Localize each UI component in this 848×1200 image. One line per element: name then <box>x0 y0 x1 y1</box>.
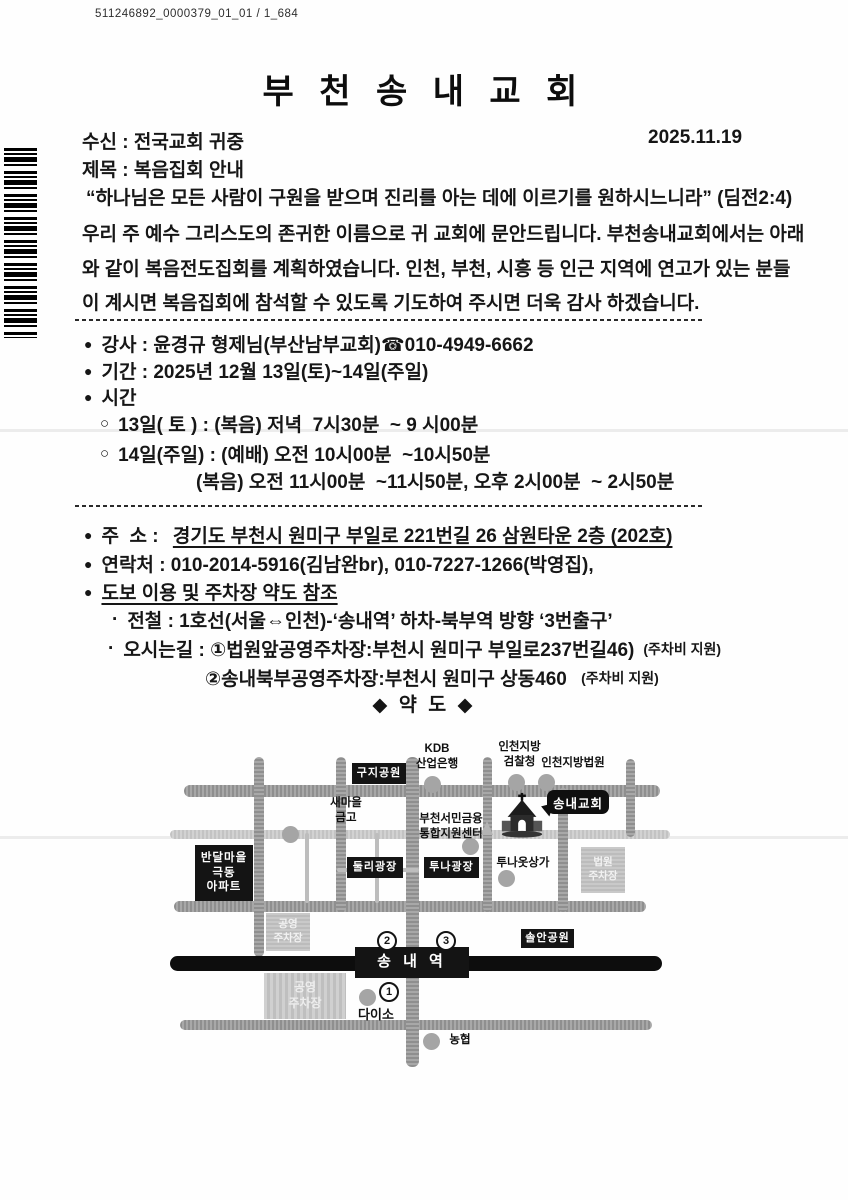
directions-line-2: ②송내북부공영주차장:부천시 원미구 상동460 (주차비 지원) <box>205 664 659 691</box>
bullet-icon: ● <box>84 363 92 379</box>
time-sun-line: ○ 14일(주일) : (예배) 오전 10시00분 ~10시50분 <box>100 440 490 467</box>
exit-3-badge: 3 <box>436 931 456 951</box>
daiso-label: 다이소 <box>351 1007 401 1024</box>
direction-arrow-icon <box>481 821 493 835</box>
direction-2-note: (주차비 지원) <box>581 668 659 688</box>
tuna-mall-marker <box>498 870 515 887</box>
bullet-icon: ● <box>84 556 92 572</box>
time-label-line: ● 시간 <box>84 383 136 410</box>
sub-bullet-icon: ○ <box>100 415 109 432</box>
period-line: ● 기간 : 2025년 12월 13일(토)~14일(주일) <box>84 357 428 384</box>
public-parking-north-box: 공영 주차장 <box>266 913 310 951</box>
subway-text: 전철 : 1호선(서울⇔인천)-‘송내역’ 하차-북부역 방향 ‘3번출구’ <box>127 606 612 633</box>
scan-header-code: 511246892_0000379_01_01 / 1_684 <box>95 8 298 20</box>
subway-line: · 전철 : 1호선(서울⇔인천)-‘송내역’ 하차-북부역 방향 ‘3번출구’ <box>112 606 613 633</box>
walk-note-line: ● 도보 이용 및 주차장 약도 참조 <box>84 578 338 605</box>
road-vertical-center <box>406 757 419 1067</box>
direction-1-text: 오시는길 : ①법원앞공영주차장:부천시 원미구 부일로237번길46) <box>123 635 634 662</box>
map-heading: ◆ 약 도 ◆ <box>0 688 848 717</box>
time-sat-text: 13일( 토 ) : (복음) 저녁 7시30분 ~ 9 시00분 <box>118 410 478 437</box>
songnae-station-box: 송 내 역 <box>355 947 469 978</box>
dot-bullet-icon: · <box>108 638 114 660</box>
dooly-plaza-box: 둘리광장 <box>347 857 403 878</box>
speaker-text: 강사 : 윤경규 형제님(부산남부교회)☎010-4949-6662 <box>101 330 533 357</box>
time-sun-text: 14일(주일) : (예배) 오전 10시00분 ~10시50분 <box>118 440 490 467</box>
tuna-plaza-box: 투나광장 <box>424 857 479 878</box>
dot-bullet-icon: · <box>112 609 118 631</box>
contact-text: 연락처 : 010-2014-5916(김남완br), 010-7227-126… <box>101 550 593 577</box>
guji-park-box: 구지공원 <box>352 763 406 784</box>
exit-1-badge: 1 <box>379 982 399 1002</box>
saemaul-marker <box>282 826 299 843</box>
location-map: 송 내 역 구지공원 반달마을 극동 아파트 둘리광장 투나광장 솔안공원 법원… <box>170 733 670 1078</box>
kdb-bank-label: KDB 산업은행 <box>407 742 467 772</box>
road-vertical-6 <box>626 759 635 837</box>
block-line-vertical-2 <box>305 833 309 903</box>
court-parking-box: 법원 주차장 <box>581 847 625 893</box>
scanned-notice-page: 511246892_0000379_01_01 / 1_684 부 천 송 내 … <box>0 0 848 1200</box>
solan-park-box: 솔안공원 <box>521 929 574 948</box>
time-sun-cont-line: (복음) 오전 11시00분 ~11시50분, 오후 2시00분 ~ 2시50분 <box>196 467 674 494</box>
time-sat-line: ○ 13일( 토 ) : (복음) 저녁 7시30분 ~ 9 시00분 <box>100 410 478 437</box>
direction-2-text: ②송내북부공영주차장:부천시 원미구 상동460 <box>205 664 572 691</box>
bullet-icon: ● <box>84 584 92 600</box>
page-title: 부 천 송 내 교 회 <box>0 64 848 113</box>
recipient-line: 수신 : 전국교회 귀중 <box>82 127 244 154</box>
contact-line: ● 연락처 : 010-2014-5916(김남완br), 010-7227-1… <box>84 550 594 577</box>
district-court-marker <box>538 774 555 791</box>
public-parking-south-box: 공영 주차장 <box>264 973 346 1019</box>
bullet-icon: ● <box>84 389 92 405</box>
nonghyup-label: 농협 <box>444 1033 476 1048</box>
finance-center-label: 부천서민금융 통합지원센터 <box>415 812 487 842</box>
district-court-label: 인천지방법원 <box>533 756 613 771</box>
bullet-icon: ● <box>84 527 92 543</box>
period-text: 기간 : 2025년 12월 13일(토)~14일(주일) <box>101 357 428 384</box>
dashed-divider-2 <box>75 505 703 507</box>
road-vertical-1 <box>254 757 264 957</box>
speaker-line: ● 강사 : 윤경규 형제님(부산남부교회)☎010-4949-6662 <box>84 330 534 357</box>
nonghyup-marker <box>423 1033 440 1050</box>
time-label-text: 시간 <box>101 383 136 410</box>
date: 2025.11.19 <box>648 127 742 149</box>
sub-bullet-icon: ○ <box>100 445 109 462</box>
tuna-mall-label: 투나옷상가 <box>493 856 553 871</box>
kdb-bank-marker <box>424 776 441 793</box>
direction-1-note: (주차비 지원) <box>643 639 721 659</box>
prosecutor-marker <box>508 774 525 791</box>
barcode <box>4 148 37 338</box>
bullet-icon: ● <box>84 336 92 352</box>
address-line: ● 주 소 : 경기도 부천시 원미구 부일로 221번길 26 삼원타운 2층… <box>84 521 672 548</box>
intro-line-1: “하나님은 모든 사람이 구원을 받으며 진리를 아는 데에 이르기를 원하시느… <box>86 183 792 210</box>
directions-line-1: · 오시는길 : ①법원앞공영주차장:부천시 원미구 부일로237번길46) (… <box>108 635 721 662</box>
intro-line-3: 와 같이 복음전도집회를 계획하였습니다. 인천, 부천, 시흥 등 인근 지역… <box>82 254 790 281</box>
bandal-apartment-box: 반달마을 극동 아파트 <box>195 845 253 901</box>
walk-note-text: 도보 이용 및 주차장 약도 참조 <box>101 578 337 605</box>
saemaul-label: 새마을 금고 <box>320 796 372 826</box>
road-vertical-2 <box>336 757 346 912</box>
songnae-church-callout: 송내교회 <box>547 790 609 814</box>
daiso-marker <box>359 989 376 1006</box>
dashed-divider-1 <box>75 319 703 321</box>
address-label: 주 소 : <box>101 521 163 548</box>
intro-line-4: 이 계시면 복음집회에 참석할 수 있도록 기도하여 주시면 더욱 감사 하겠습… <box>82 288 699 315</box>
subject-line: 제목 : 복음집회 안내 <box>82 155 244 182</box>
intro-line-2: 우리 주 예수 그리스도의 존귀한 이름으로 귀 교회에 문안드립니다. 부천송… <box>82 219 804 246</box>
exit-2-badge: 2 <box>377 931 397 951</box>
address-value: 경기도 부천시 원미구 부일로 221번길 26 삼원타운 2층 (202호) <box>173 521 673 548</box>
